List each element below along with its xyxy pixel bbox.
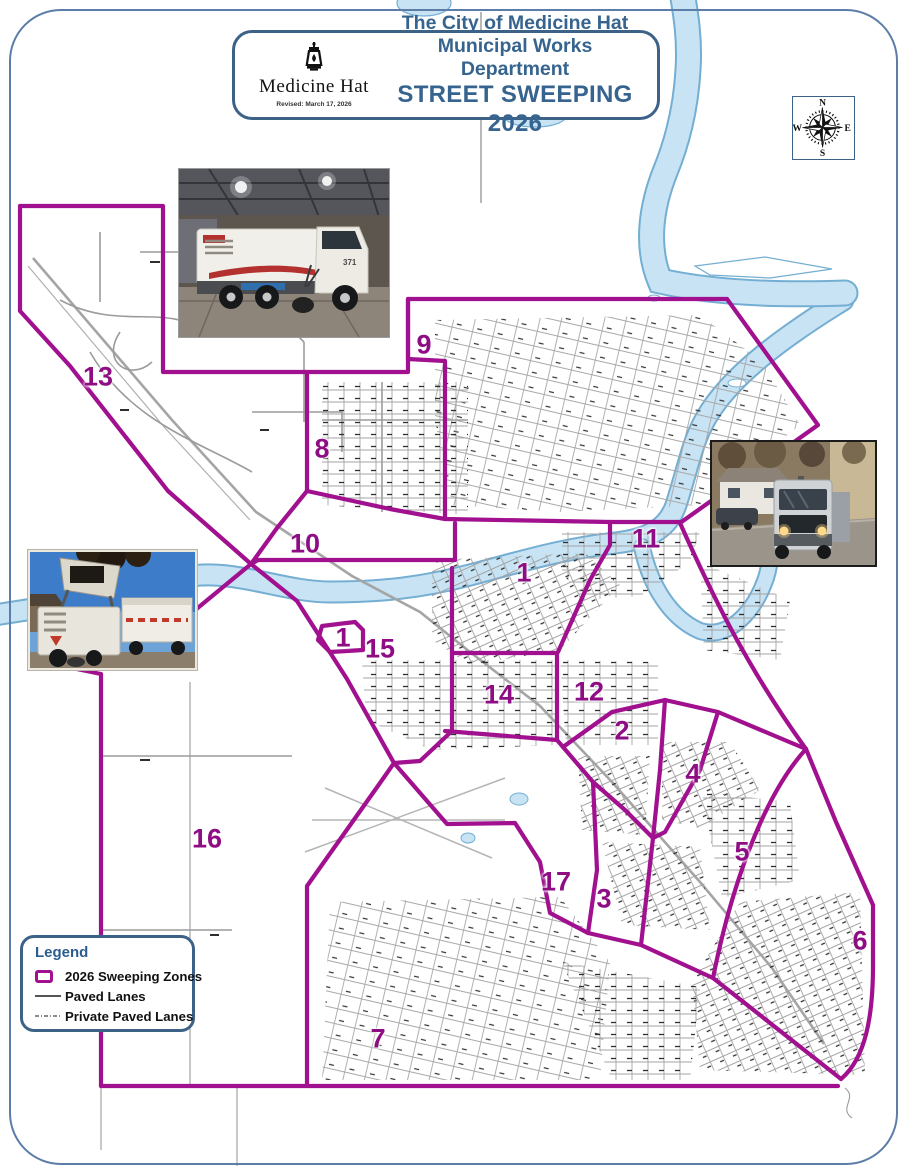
title-line-2: Municipal Works Department [383, 35, 647, 81]
zone-label-5: 5 [734, 837, 749, 868]
title-line-3: STREET SWEEPING 2026 [383, 81, 647, 138]
zone-label-12: 12 [574, 677, 604, 708]
compass-s: S [820, 149, 825, 157]
city-logo: Medicine Hat Revised: March 17, 2026 [245, 42, 383, 108]
photo-sweeper-in-garage: 371 [178, 168, 390, 338]
zone-label-11: 11 [632, 524, 661, 555]
zone-label-3: 3 [596, 884, 611, 915]
logo-wordmark: Medicine Hat [245, 76, 383, 98]
zone-label-13: 13 [83, 362, 113, 393]
zone-boundary-swatch [35, 970, 65, 983]
compass-e: E [845, 124, 851, 134]
legend-title: Legend [35, 944, 182, 961]
photo-sweeper-on-street [710, 440, 877, 567]
map-title: The City of Medicine Hat Municipal Works… [383, 12, 647, 138]
dash-line-swatch [35, 1014, 65, 1018]
legend-item-zones: 2026 Sweeping Zones [35, 966, 182, 986]
zone-label-8: 8 [314, 434, 329, 465]
solid-line-swatch [35, 995, 65, 997]
legend-label-private: Private Paved Lanes [65, 1009, 193, 1024]
compass-n: N [819, 99, 826, 109]
zone-label-16: 16 [192, 824, 222, 855]
zone-label-4: 4 [685, 759, 700, 790]
map-page: 1 1 2 3 4 5 6 7 8 9 10 11 12 13 14 15 16… [0, 0, 907, 1174]
legend-item-paved: Paved Lanes [35, 986, 182, 1006]
title-line-1: The City of Medicine Hat [383, 12, 647, 35]
compass-w: W [793, 124, 803, 134]
legend-label-paved: Paved Lanes [65, 989, 146, 1004]
zone-label-1: 1 [516, 558, 531, 589]
zone-label-7: 7 [370, 1024, 385, 1055]
legend-item-private: Private Paved Lanes [35, 1006, 182, 1026]
zone-label-9: 9 [416, 330, 431, 361]
zone-label-6: 6 [852, 926, 867, 957]
photo-sweeper-dumping [28, 550, 197, 670]
title-box: Medicine Hat Revised: March 17, 2026 The… [232, 30, 660, 120]
zone-label-1-enclave: 1 [335, 623, 350, 654]
legend: Legend 2026 Sweeping Zones Paved Lanes P… [20, 935, 195, 1032]
truck-unit-number: 371 [343, 258, 357, 267]
legend-label-zones: 2026 Sweeping Zones [65, 969, 202, 984]
zone-label-10: 10 [290, 529, 320, 560]
zone-label-2: 2 [614, 716, 629, 747]
revised-date: Revised: March 17, 2026 [245, 101, 383, 108]
zone-label-15: 15 [365, 634, 395, 665]
compass-rose: N S W E [792, 96, 855, 160]
zone-label-17: 17 [541, 867, 571, 898]
lantern-icon [301, 42, 327, 76]
zone-label-14: 14 [484, 680, 514, 711]
